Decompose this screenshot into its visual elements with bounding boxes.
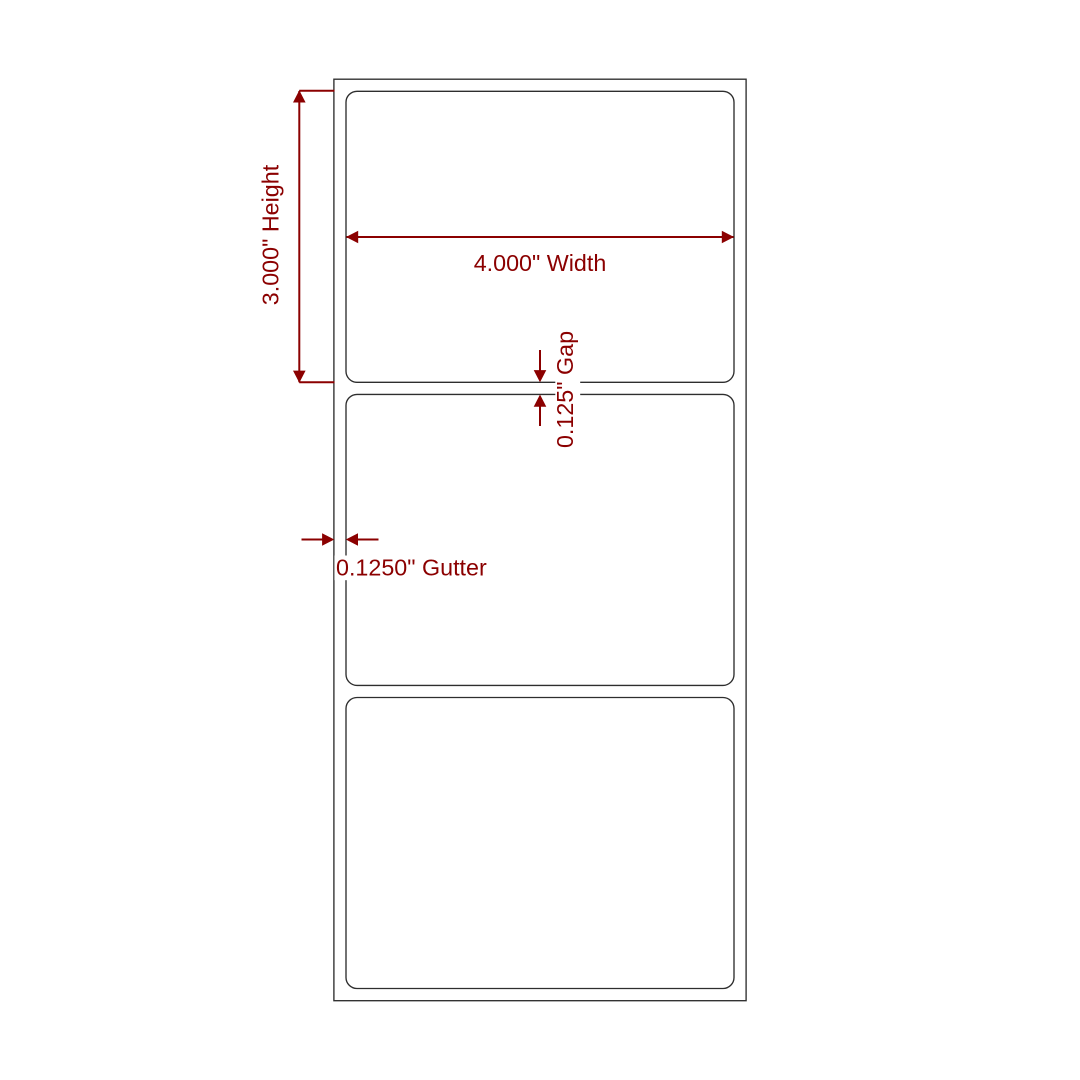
svg-text:0.1250" Gutter: 0.1250" Gutter: [336, 555, 487, 581]
svg-text:4.000" Width: 4.000" Width: [474, 250, 607, 276]
svg-text:3.000" Height: 3.000" Height: [257, 164, 283, 305]
svg-text:0.125" Gap: 0.125" Gap: [552, 331, 578, 448]
